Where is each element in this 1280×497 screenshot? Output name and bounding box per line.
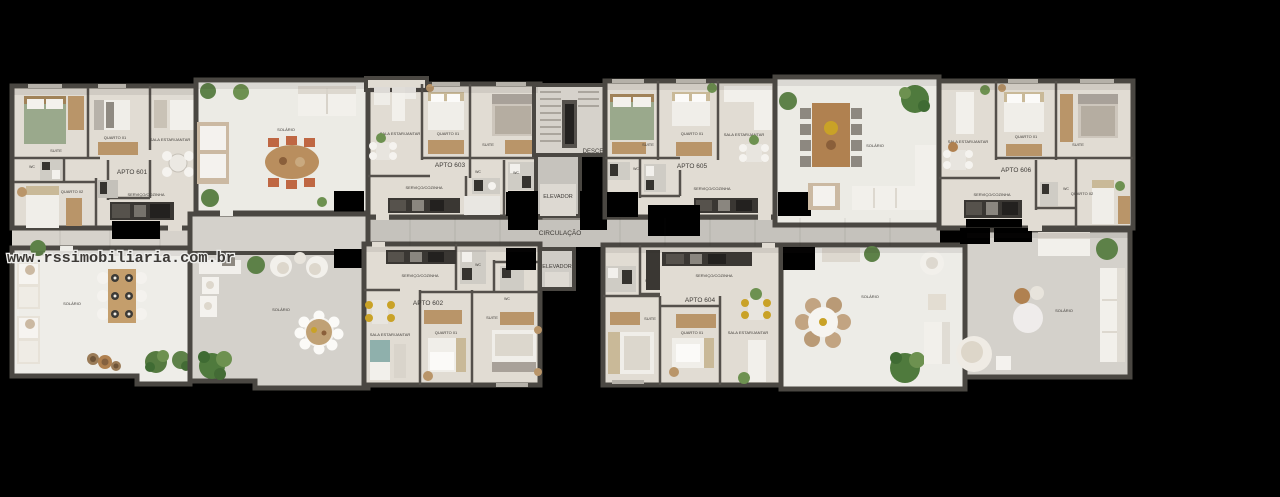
- svg-text:QUARTO 01: QUARTO 01: [1015, 134, 1038, 139]
- svg-text:QUARTO 02: QUARTO 02: [61, 189, 84, 194]
- svg-text:SALA ESTAR/JANTAR: SALA ESTAR/JANTAR: [380, 131, 421, 136]
- svg-text:SERVIÇO/COZINHA: SERVIÇO/COZINHA: [401, 273, 438, 278]
- svg-text:SUITE: SUITE: [642, 142, 654, 147]
- svg-text:WC: WC: [1063, 187, 1069, 191]
- svg-text:QUARTO 01: QUARTO 01: [437, 131, 460, 136]
- svg-text:SUITE: SUITE: [486, 315, 498, 320]
- svg-text:SOLÁRIO: SOLÁRIO: [272, 307, 290, 312]
- svg-text:www.rssimobiliaria.com.br: www.rssimobiliaria.com.br: [7, 249, 235, 267]
- svg-text:WC: WC: [29, 165, 35, 169]
- svg-text:WC: WC: [504, 297, 510, 301]
- svg-text:SERVIÇO/COZINHA: SERVIÇO/COZINHA: [973, 192, 1010, 197]
- svg-text:WC: WC: [475, 263, 481, 267]
- svg-text:SOLÁRIO: SOLÁRIO: [63, 301, 81, 306]
- svg-text:APTO 605: APTO 605: [677, 163, 708, 170]
- svg-text:WC: WC: [513, 171, 519, 175]
- svg-text:SOLÁRIO: SOLÁRIO: [1055, 308, 1073, 313]
- svg-text:WC: WC: [475, 170, 481, 174]
- svg-text:APTO 604: APTO 604: [685, 297, 716, 304]
- svg-text:SALA ESTAR/JANTAR: SALA ESTAR/JANTAR: [370, 332, 411, 337]
- svg-text:QUARTO 01: QUARTO 01: [681, 330, 704, 335]
- svg-text:APTO 603: APTO 603: [435, 162, 466, 169]
- svg-text:QUARTO 01: QUARTO 01: [104, 135, 127, 140]
- svg-text:SERVIÇO/COZINHA: SERVIÇO/COZINHA: [695, 273, 732, 278]
- svg-text:ELEVADOR: ELEVADOR: [543, 194, 573, 200]
- svg-text:QUARTO 01: QUARTO 01: [681, 131, 704, 136]
- svg-text:APTO 602: APTO 602: [413, 300, 444, 307]
- svg-text:QUARTO 01: QUARTO 01: [435, 330, 458, 335]
- svg-text:SERVIÇO/COZINHA: SERVIÇO/COZINHA: [693, 186, 730, 191]
- svg-text:SOLÁRIO: SOLÁRIO: [861, 294, 879, 299]
- svg-text:WC: WC: [633, 167, 639, 171]
- svg-text:ELEVADOR: ELEVADOR: [542, 264, 572, 270]
- svg-text:SALA ESTAR/JANTAR: SALA ESTAR/JANTAR: [150, 137, 191, 142]
- svg-text:SOLÁRIO: SOLÁRIO: [866, 143, 884, 148]
- svg-text:APTO 606: APTO 606: [1001, 167, 1032, 174]
- svg-text:DESCE: DESCE: [583, 149, 604, 155]
- svg-text:SALA ESTAR/JANTAR: SALA ESTAR/JANTAR: [724, 132, 765, 137]
- svg-text:SERVIÇO/COZINHA: SERVIÇO/COZINHA: [127, 192, 164, 197]
- svg-text:SUITE: SUITE: [50, 148, 62, 153]
- svg-text:QUARTO 02: QUARTO 02: [1071, 191, 1094, 196]
- svg-text:SUITE: SUITE: [644, 316, 656, 321]
- svg-text:SUITE: SUITE: [1072, 142, 1084, 147]
- svg-text:SERVIÇO/COZINHA: SERVIÇO/COZINHA: [405, 185, 442, 190]
- svg-text:CIRCULAÇÃO: CIRCULAÇÃO: [539, 228, 582, 237]
- svg-text:SALA ESTAR/JANTAR: SALA ESTAR/JANTAR: [728, 330, 769, 335]
- svg-text:APTO 601: APTO 601: [117, 169, 148, 176]
- svg-text:SOLÁRIO: SOLÁRIO: [277, 127, 295, 132]
- svg-text:SUITE: SUITE: [482, 142, 494, 147]
